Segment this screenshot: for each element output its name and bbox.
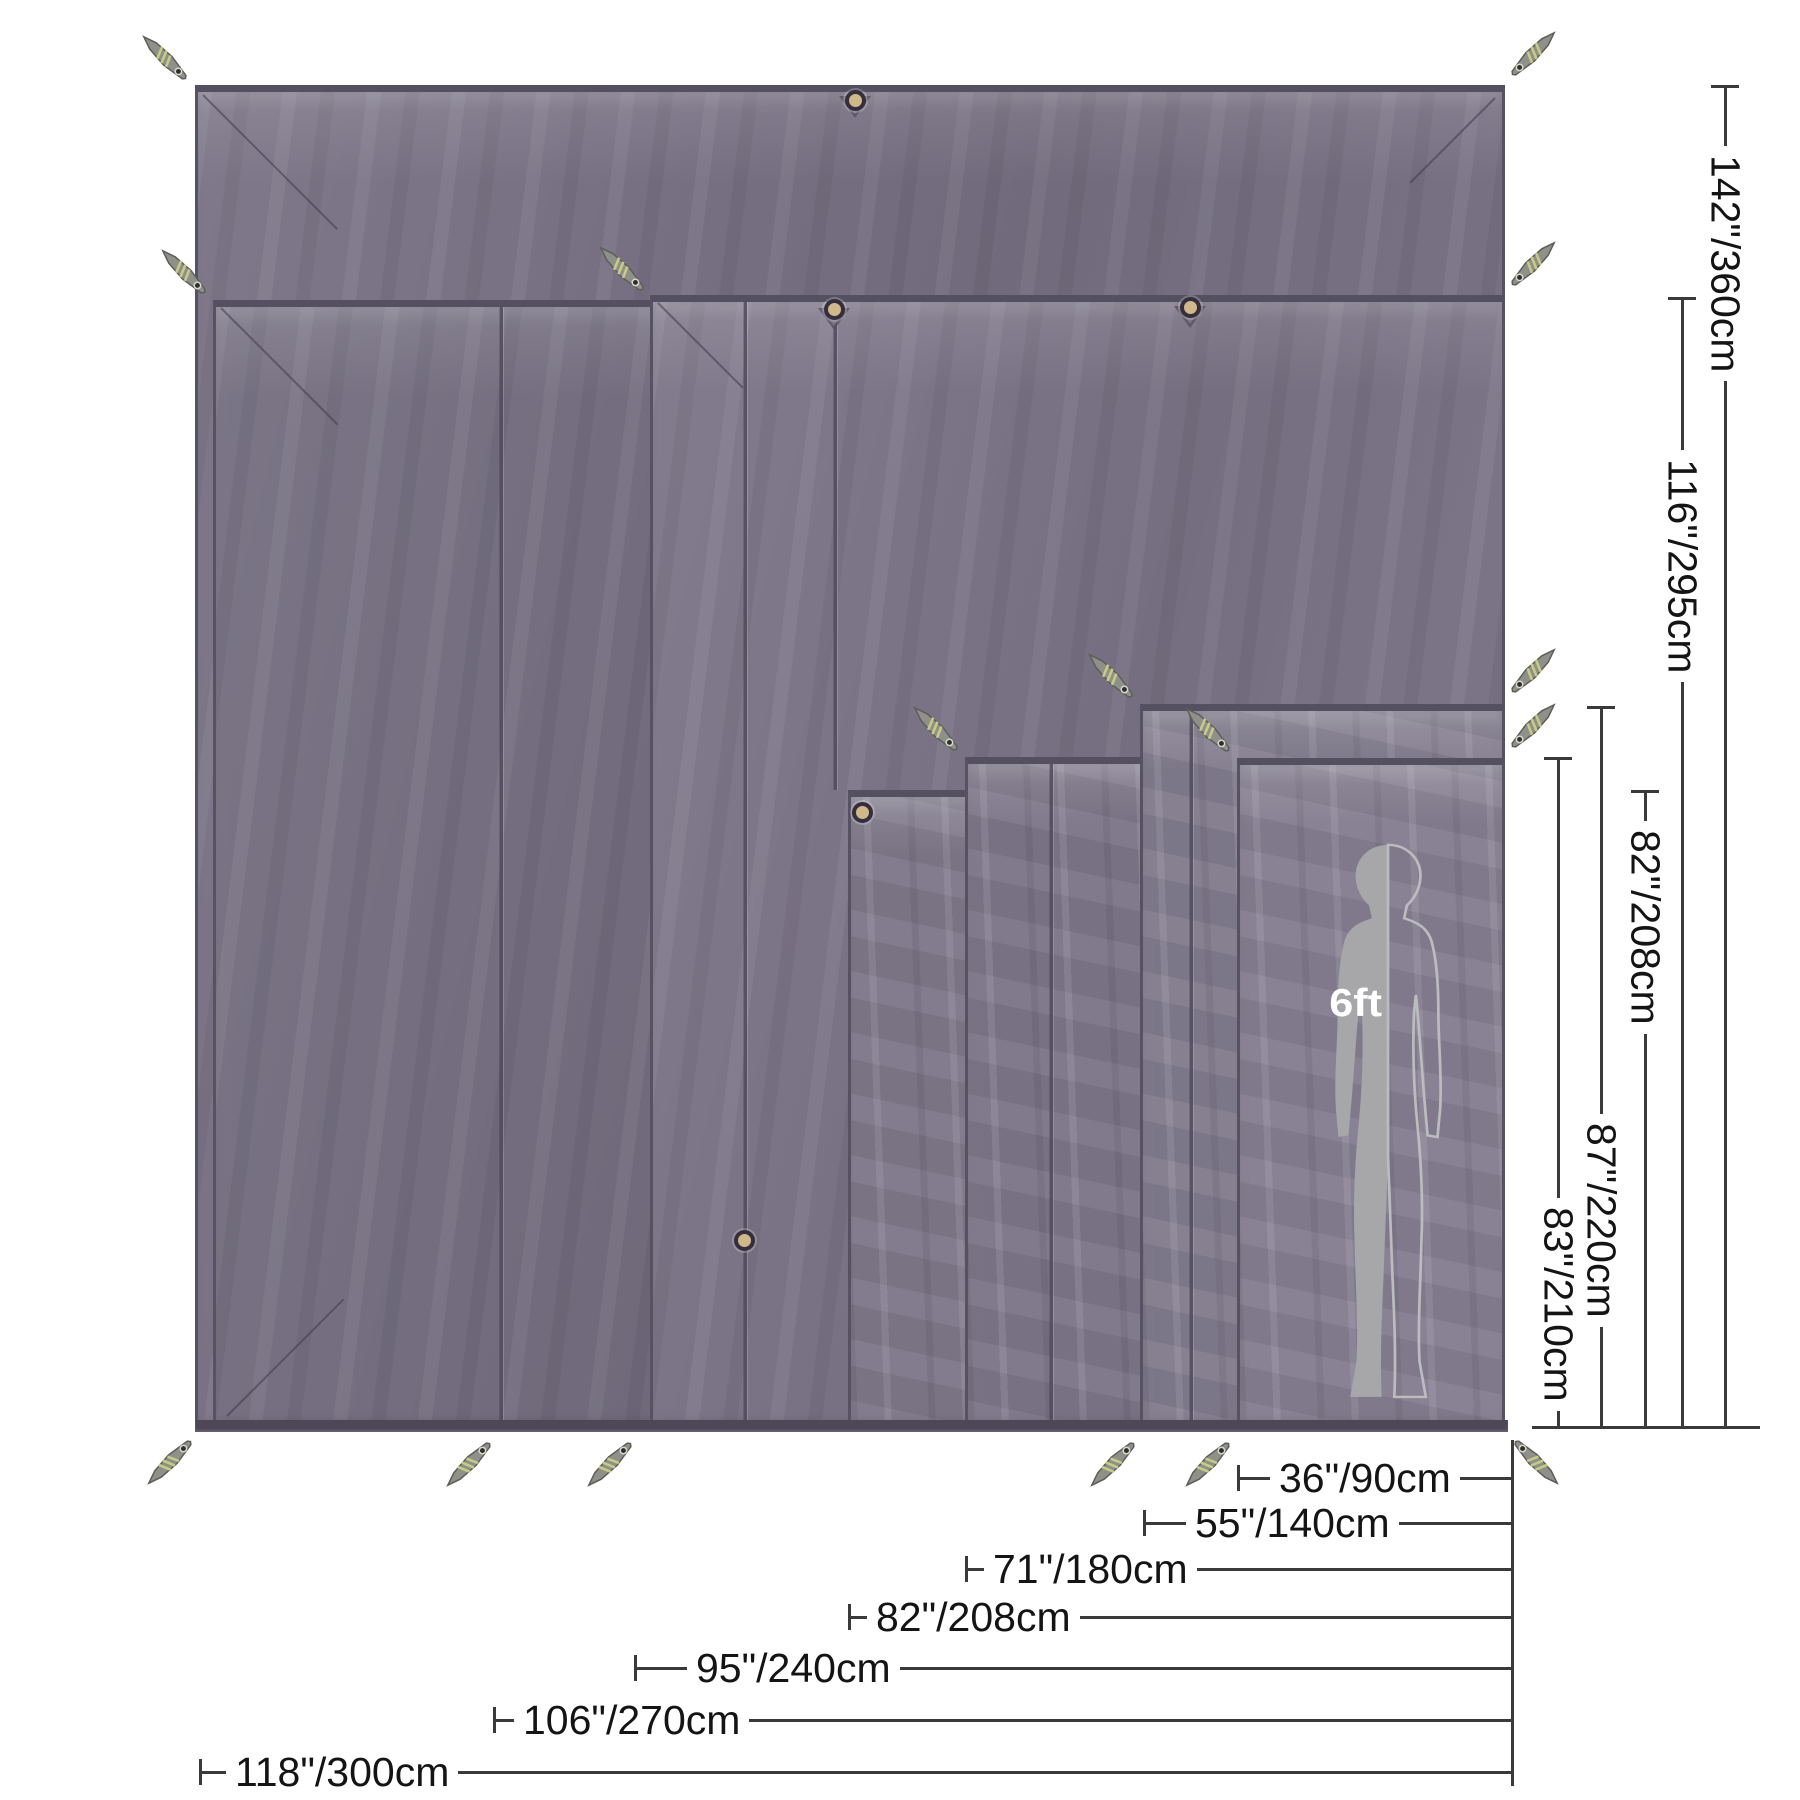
dimension-label: 36"/90cm [1270, 1455, 1460, 1502]
dimension-label: 106"/270cm [514, 1697, 749, 1744]
dimension-label: 55"/140cm [1186, 1500, 1399, 1547]
dim-line [851, 1616, 867, 1619]
dim-line [1724, 88, 1727, 146]
dim-width-95: 95"/240cm [634, 1644, 1511, 1692]
dim-line [1240, 1477, 1270, 1480]
dimension-label: 118"/300cm [226, 1749, 458, 1796]
dim-line [968, 1568, 984, 1571]
dim-width-55: 55"/140cm [1143, 1499, 1511, 1547]
dim-width-71: 71"/180cm [965, 1545, 1511, 1593]
dim-line [1644, 1034, 1647, 1427]
stake-icon [581, 1435, 639, 1493]
dim-width-106: 106"/270cm [493, 1696, 1511, 1744]
fabric-seam [744, 302, 747, 1420]
person-height-label: 6ft [1329, 981, 1382, 1024]
dim-height-142: 142"/360cm [1701, 85, 1749, 1427]
dim-line [1557, 760, 1560, 1198]
dim-line [1600, 1327, 1603, 1427]
stake-icon [136, 29, 194, 87]
person-right-half-outline [1388, 845, 1441, 1397]
dim-line [496, 1719, 514, 1722]
dim-height-82: 82"/208cm [1621, 790, 1669, 1427]
grommet-icon [845, 90, 866, 111]
dimension-label: 87"/220cm [1578, 1114, 1625, 1327]
fabric-seam [1190, 711, 1193, 1420]
dim-line [1197, 1568, 1511, 1571]
dim-line [458, 1771, 1511, 1774]
dimension-label: 82"/208cm [1622, 821, 1669, 1034]
grommet-icon [852, 802, 873, 823]
dimension-label: 82"/208cm [867, 1594, 1080, 1641]
person-silhouette: 6ft [1298, 840, 1478, 1405]
person-left-half [1335, 845, 1388, 1397]
fabric-seam [500, 307, 503, 1420]
dimension-label: 116"/295cm [1659, 450, 1706, 682]
dim-line [1460, 1477, 1511, 1480]
dimension-label: 83"/210cm [1535, 1198, 1582, 1411]
dim-line [749, 1719, 1511, 1722]
stake-icon [1179, 1435, 1237, 1493]
tarp-bottom-hem [195, 1420, 1508, 1432]
fabric-seam [1050, 764, 1053, 1420]
dim-line [1724, 381, 1727, 1427]
stake-icon [1084, 1435, 1142, 1493]
dim-line [1644, 793, 1647, 821]
dim-height-87: 87"/220cm [1577, 706, 1625, 1427]
stake-icon [1504, 697, 1562, 755]
dim-line [202, 1771, 226, 1774]
fabric-seam [834, 305, 837, 790]
dim-line [1681, 300, 1684, 450]
stake-icon [1504, 642, 1562, 700]
dim-line [1399, 1522, 1511, 1525]
stake-icon [440, 1435, 498, 1493]
dim-line [1146, 1522, 1186, 1525]
dim-width-36: 36"/90cm [1237, 1454, 1511, 1502]
grommet-icon [824, 299, 845, 320]
dim-width-118: 118"/300cm [199, 1748, 1511, 1796]
dim-line [1080, 1616, 1511, 1619]
dim-line [900, 1667, 1511, 1670]
stake-icon [1507, 1433, 1565, 1491]
dim-line [1600, 709, 1603, 1114]
dim-line [637, 1667, 687, 1670]
dim-line [1681, 682, 1684, 1427]
grommet-icon [1180, 297, 1201, 318]
dimension-label: 95"/240cm [687, 1645, 900, 1692]
dim-line [1557, 1411, 1560, 1427]
dimension-label: 71"/180cm [984, 1546, 1197, 1593]
tarp-size-diagram: 6ft 36"/90cm 55"/140cm 71"/180cm 82"/208… [0, 0, 1800, 1800]
stake-icon [141, 1433, 199, 1491]
stake-icon [1504, 235, 1562, 293]
dimension-label: 142"/360cm [1702, 146, 1749, 381]
reference-line-vertical [1511, 1440, 1514, 1786]
stake-icon [1504, 25, 1562, 83]
grommet-icon [734, 1230, 755, 1251]
dim-width-82: 82"/208cm [848, 1593, 1511, 1641]
dim-height-83: 83"/210cm [1534, 757, 1582, 1427]
